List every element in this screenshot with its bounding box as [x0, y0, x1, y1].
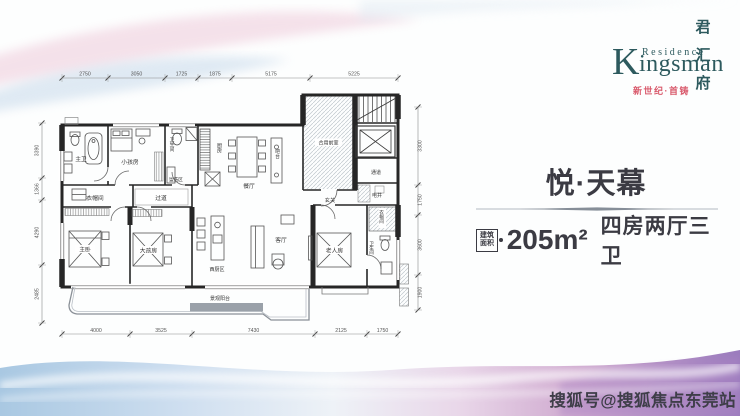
area-badge: 建筑 面积	[476, 229, 498, 252]
dim-top-4: 1875	[209, 72, 221, 78]
floorplan: 主卫 小孩房 卫生间 盥洗区 厨房 衣帽间 过道 主卧 大孩房 餐厅 吧台 合用…	[25, 55, 470, 345]
label-utility-shaft: 电井	[372, 192, 382, 199]
label-master-bath: 主卫	[75, 155, 87, 163]
label-closet: 衣帽间	[86, 194, 104, 202]
unit-spec-row: 建筑 面积 205m² 四房两厅三卫	[476, 223, 726, 257]
dim-bottom-5: 1750	[377, 328, 389, 334]
dim-left-3: 4290	[35, 227, 41, 239]
label-wash-area: 盥洗区	[169, 176, 183, 183]
dim-bottom-4: 2125	[335, 328, 347, 334]
label-elder-closet: 衣帽间	[379, 209, 385, 225]
brand-char-3: 府	[694, 76, 712, 91]
area-badge-line2: 面积	[480, 240, 494, 248]
unit-name: 悦·天幕	[472, 160, 720, 202]
label-corridor: 过道	[155, 194, 167, 202]
label-kitchen: 厨房	[216, 143, 222, 154]
dim-left-1: 3390	[35, 145, 41, 157]
dim-right-2: 1750	[418, 194, 424, 206]
label-balcony: 景观阳台	[210, 295, 230, 302]
dim-top-5: 5175	[265, 72, 277, 78]
dim-right-1: 3300	[418, 140, 424, 152]
dim-left-4: 2485	[35, 288, 41, 300]
brand-tagline: 新世纪·首铸	[633, 84, 690, 97]
label-passage: 通道	[371, 169, 381, 176]
label-dining: 餐厅	[243, 182, 255, 190]
dim-bottom-2: 3525	[155, 328, 167, 334]
brand-initial: K	[612, 40, 639, 84]
badge-dot	[499, 238, 503, 242]
dim-top-6: 5225	[348, 72, 360, 78]
elevator	[356, 126, 395, 157]
label-west-kitchen: 西厨区	[209, 267, 224, 273]
unit-rooms: 四房两厅三卫	[601, 210, 726, 270]
brand-char-2: 汇	[694, 48, 712, 63]
label-master-bedroom: 主卧	[79, 246, 91, 254]
poster-page: 主卫 小孩房 卫生间 盥洗区 厨房 衣帽间 过道 主卧 大孩房 餐厅 吧台 合用…	[0, 0, 740, 416]
dim-bottom-1: 4000	[90, 328, 102, 334]
dim-top-3: 1725	[176, 72, 188, 78]
label-vestibule: 合用前室	[318, 140, 338, 147]
stairs	[357, 97, 396, 123]
brand-vertical-name: 君 汇 府	[694, 20, 712, 91]
label-living: 客厅	[275, 236, 287, 244]
brand-char-1: 君	[694, 20, 712, 35]
label-elder-room: 老人房	[326, 247, 344, 255]
unit-area: 205m²	[507, 224, 588, 256]
dim-right-4: 1900	[418, 287, 424, 299]
area-badge-line1: 建筑	[480, 232, 494, 240]
balcony-outline	[69, 287, 309, 320]
watermark: 搜狐号@搜狐焦点东莞站	[549, 387, 736, 411]
dim-top-2: 3050	[131, 72, 143, 78]
dimension-texts: 2750 3050 1725 1875 5175 5225 4000 3525 …	[35, 72, 424, 335]
label-teen-room: 大孩房	[140, 247, 158, 255]
label-foyer: 玄关	[325, 196, 335, 204]
label-bar: 吧台	[274, 149, 279, 160]
label-kids-room: 小孩房	[121, 158, 139, 166]
dim-bottom-3: 7430	[248, 328, 260, 334]
dim-right-3: 3600	[418, 239, 424, 251]
label-elder-bath: 卫生间	[369, 241, 375, 256]
dim-left-2: 1366	[35, 183, 41, 195]
label-bathroom: 卫生间	[169, 137, 174, 153]
dim-top-1: 2750	[79, 72, 91, 78]
